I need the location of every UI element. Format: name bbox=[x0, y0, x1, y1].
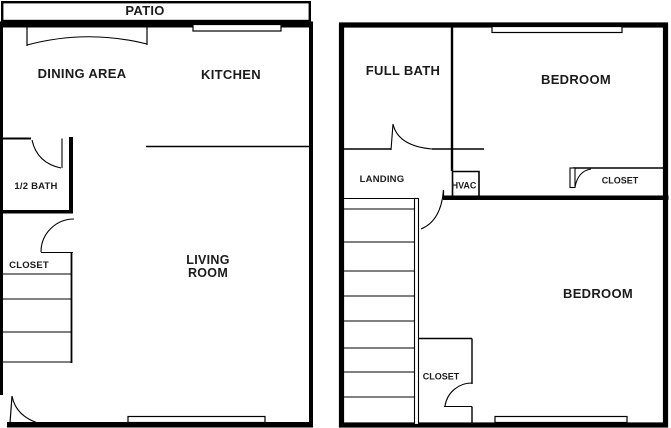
stairs-first-floor bbox=[0, 274, 72, 362]
room-label-full-bath: FULL BATH bbox=[366, 64, 440, 78]
room-label-closet-first: CLOSET bbox=[9, 261, 49, 271]
half-bath-door-arc bbox=[32, 140, 61, 168]
floor-plan-drawing bbox=[0, 0, 671, 428]
stair-wall bbox=[415, 199, 419, 425]
wall-right bbox=[309, 22, 313, 428]
entry-door-leaf bbox=[10, 396, 12, 423]
stairs-second-floor bbox=[344, 242, 415, 397]
room-label-closet-upper: CLOSET bbox=[602, 176, 639, 185]
half-bath-wall-bottom bbox=[0, 210, 73, 214]
second-floor-plan bbox=[342, 25, 669, 425]
closet-upper-jamb bbox=[570, 168, 575, 188]
room-label-patio: PATIO bbox=[125, 4, 164, 18]
half-bath-wall-right bbox=[69, 137, 73, 212]
slider-door-arc bbox=[27, 37, 147, 45]
closet-lower-door-arc bbox=[445, 383, 472, 406]
room-label-dining-area: DINING AREA bbox=[38, 67, 127, 81]
kitchen-window bbox=[193, 25, 281, 32]
outer-walls bbox=[342, 25, 666, 425]
entry-door-arc bbox=[12, 396, 41, 424]
room-label-bedroom-upper: BEDROOM bbox=[541, 73, 611, 87]
room-label-hvac: HVAC bbox=[452, 181, 477, 190]
closet-upper-door-arc bbox=[575, 169, 591, 187]
bedroom-upper-window bbox=[492, 27, 622, 33]
room-label-bedroom-lower: BEDROOM bbox=[563, 287, 633, 301]
wall-bedroom-divider bbox=[443, 196, 669, 201]
closet-door-arc bbox=[41, 219, 74, 252]
full-bath-door-arc bbox=[393, 124, 432, 149]
room-label-landing: LANDING bbox=[360, 175, 405, 185]
room-label-half-bath: 1/2 BATH bbox=[14, 182, 57, 192]
room-label-kitchen: KITCHEN bbox=[201, 68, 261, 82]
bedroom-lower-door-arc bbox=[421, 190, 444, 229]
bedroom-lower-window bbox=[495, 417, 627, 423]
room-label-living-room: LIVING ROOM bbox=[177, 254, 239, 280]
floor-plan: PATIO DINING AREA KITCHEN 1/2 BATH CLOSE… bbox=[0, 0, 671, 428]
wall-left bbox=[0, 22, 3, 396]
room-label-closet-lower: CLOSET bbox=[423, 372, 460, 381]
living-room-window bbox=[128, 417, 265, 423]
full-bath-door-leaf bbox=[391, 124, 393, 150]
